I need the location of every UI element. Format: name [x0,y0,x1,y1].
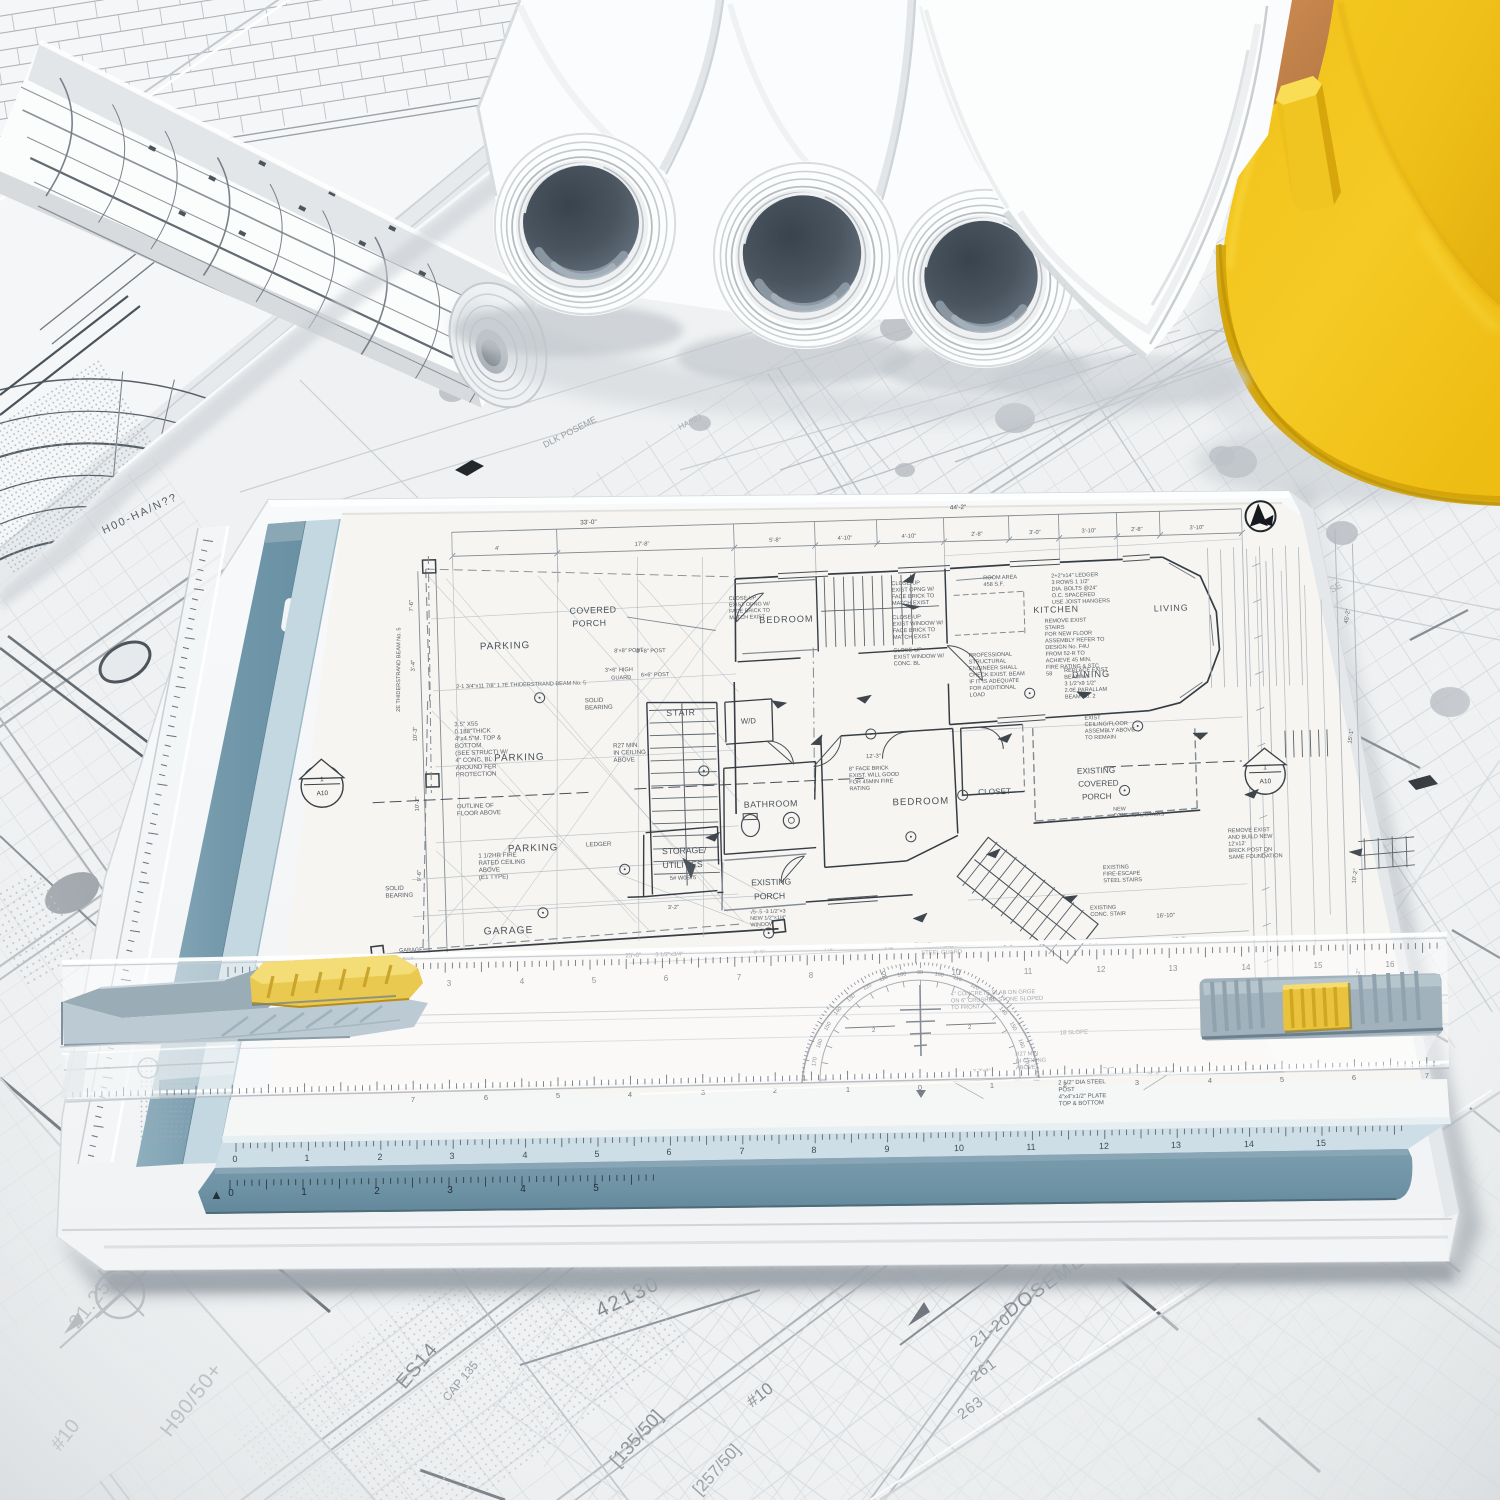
svg-text:3: 3 [447,979,452,988]
svg-text:3: 3 [447,1185,453,1196]
svg-text:0: 0 [232,1154,237,1164]
svg-text:3'-10": 3'-10" [1189,525,1204,531]
svg-text:5: 5 [1280,1075,1284,1084]
svg-text:17'-8": 17'-8" [635,541,650,547]
svg-text:44'-2": 44'-2" [950,504,967,512]
svg-text:7'-6": 7'-6" [409,600,415,612]
svg-text:10: 10 [954,1143,964,1153]
svg-text:10'-3": 10'-3" [413,727,419,742]
svg-text:3'-4": 3'-4" [411,660,417,672]
svg-text:2E THIDERSTRAND BEAM No. 5: 2E THIDERSTRAND BEAM No. 5 [396,627,402,711]
svg-text:EXISTING: EXISTING [1077,766,1115,776]
svg-text:4: 4 [628,1090,632,1099]
svg-text:12: 12 [1099,1141,1109,1151]
svg-text:13: 13 [1169,964,1178,973]
svg-text:5: 5 [593,1183,599,1194]
svg-text:2: 2 [1063,1080,1067,1089]
svg-text:8'×8" POST: 8'×8" POST [636,648,666,655]
svg-text:A10: A10 [316,790,328,797]
svg-text:6: 6 [484,1093,488,1102]
svg-text:6×6" POST: 6×6" POST [641,672,670,679]
svg-text:12: 12 [1097,965,1106,974]
svg-text:6: 6 [1352,1073,1356,1082]
svg-text:2: 2 [773,1086,777,1095]
svg-text:4: 4 [522,1150,527,1160]
svg-text:13: 13 [1171,1140,1181,1150]
svg-text:11: 11 [1026,1142,1036,1152]
svg-text:LEDGER: LEDGER [586,841,612,849]
svg-text:BEDROOM: BEDROOM [759,614,814,626]
svg-text:33'-0": 33'-0" [580,519,597,527]
svg-text:2: 2 [377,1152,382,1162]
svg-text:1: 1 [304,1153,309,1163]
svg-text:6: 6 [666,1147,671,1157]
svg-text:1: 1 [320,776,324,783]
svg-text:STORAGE/: STORAGE/ [662,845,707,856]
svg-text:3: 3 [1135,1078,1139,1087]
svg-text:A10: A10 [1260,778,1272,785]
svg-text:5: 5 [594,1149,599,1159]
svg-text:10'-2": 10'-2" [415,797,421,812]
svg-text:6: 6 [664,974,669,983]
svg-text:1: 1 [1263,764,1267,771]
svg-text:PORCH: PORCH [754,891,785,902]
svg-text:3'-0": 3'-0" [1029,530,1041,536]
svg-text:14: 14 [1242,963,1251,972]
svg-text:16: 16 [1386,960,1395,969]
svg-text:COVERED: COVERED [1078,779,1119,789]
svg-text:0: 0 [228,1188,234,1199]
svg-text:PORCH: PORCH [1082,792,1112,802]
svg-text:BEDROOM: BEDROOM [892,796,949,809]
svg-text:3'×6" HIGH: 3'×6" HIGH [605,667,633,674]
svg-text:COVERED: COVERED [569,604,616,615]
svg-text:2'-8": 2'-8" [1131,527,1143,533]
svg-text:4: 4 [520,1184,526,1195]
svg-text:4'-10": 4'-10" [902,534,917,540]
svg-text:4: 4 [1208,1076,1212,1085]
svg-text:5# W0575: 5# W0575 [670,875,697,882]
svg-text:3: 3 [449,1151,454,1161]
svg-text:2: 2 [374,1186,380,1197]
svg-text:1: 1 [301,1187,307,1198]
svg-text:STAIR: STAIR [666,707,696,718]
svg-text:3'-2": 3'-2" [668,905,679,911]
svg-text:90: 90 [917,970,923,976]
svg-text:GUARD: GUARD [611,675,631,682]
svg-text:15: 15 [1316,1138,1326,1148]
svg-text:8: 8 [811,1145,816,1155]
svg-text:PORCH: PORCH [572,618,607,629]
svg-text:BATHROOM: BATHROOM [744,798,798,810]
svg-text:2'-8": 2'-8" [971,532,983,538]
svg-text:16'-10": 16'-10" [1156,913,1175,920]
svg-text:1: 1 [990,1081,994,1090]
svg-text:12'-3": 12'-3" [866,754,881,760]
svg-text:11: 11 [1024,967,1033,976]
svg-text:9: 9 [884,1144,889,1154]
svg-text:3'-10": 3'-10" [1081,528,1096,534]
svg-text:7: 7 [1425,1071,1429,1080]
svg-text:15: 15 [1314,961,1323,970]
svg-text:5: 5 [556,1091,560,1100]
svg-text:5'-8": 5'-8" [769,538,781,544]
svg-text:5: 5 [592,976,597,985]
svg-text:4': 4' [495,546,500,552]
svg-text:8: 8 [809,971,814,980]
svg-text:CLOSET: CLOSET [978,787,1011,797]
svg-text:7: 7 [737,973,742,982]
svg-text:LIVING: LIVING [1154,602,1189,613]
svg-text:UTILITIES: UTILITIES [662,859,703,870]
svg-text:4'-10": 4'-10" [838,535,853,541]
svg-text:4: 4 [520,977,525,986]
svg-text:W/D: W/D [741,716,757,725]
svg-text:GARAGE: GARAGE [484,925,534,937]
svg-text:14: 14 [1244,1139,1254,1149]
svg-text:7: 7 [411,1095,415,1104]
svg-text:▲: ▲ [210,1187,223,1202]
svg-text:7: 7 [739,1146,744,1156]
svg-text:PARKING: PARKING [480,640,531,652]
